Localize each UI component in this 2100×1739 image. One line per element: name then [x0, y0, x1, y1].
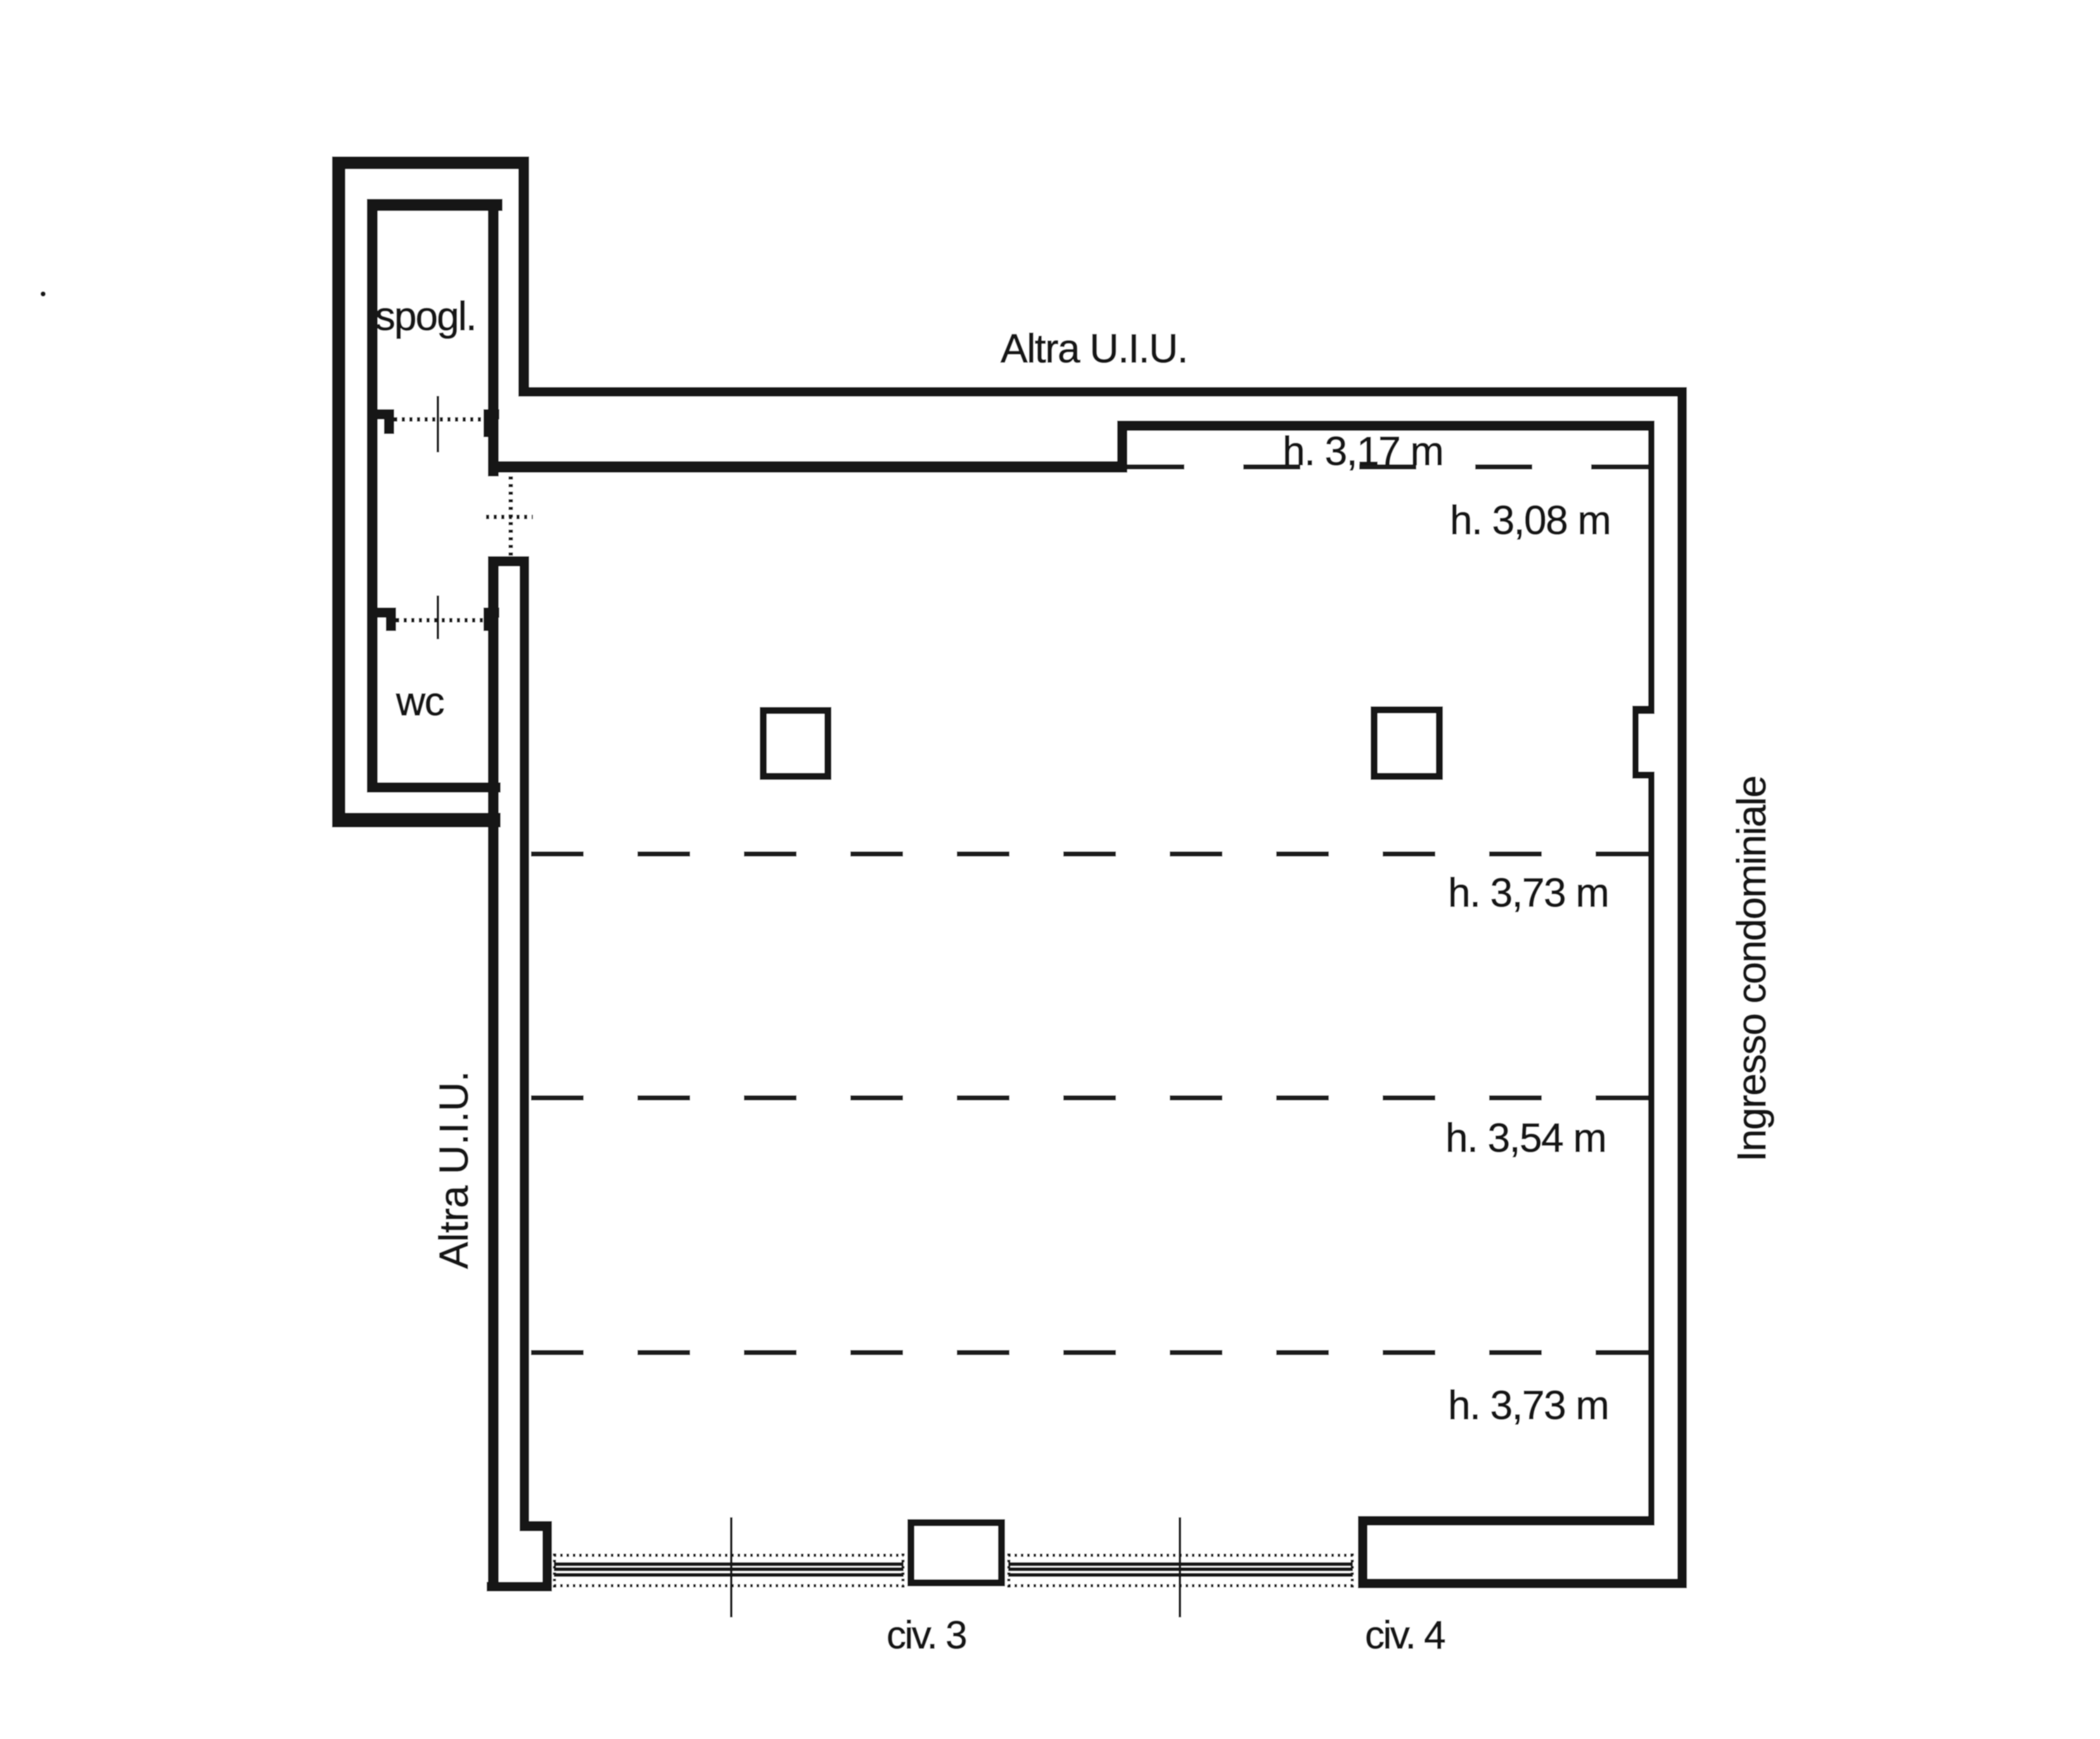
svg-text:civ. 3: civ. 3 — [887, 1614, 966, 1657]
svg-text:h. 3,73 m: h. 3,73 m — [1448, 1382, 1608, 1428]
svg-text:h. 3,17 m: h. 3,17 m — [1283, 428, 1443, 474]
svg-text:h. 3,08 m: h. 3,08 m — [1450, 497, 1610, 543]
svg-text:civ. 4: civ. 4 — [1365, 1614, 1445, 1657]
svg-text:h. 3,54 m: h. 3,54 m — [1445, 1115, 1606, 1161]
svg-text:h. 3,73 m: h. 3,73 m — [1448, 870, 1608, 915]
svg-text:Ingresso condominiale: Ingresso condominiale — [1729, 776, 1774, 1162]
svg-text:Altra U.I.U.: Altra U.I.U. — [1001, 326, 1188, 371]
svg-text:spogl.: spogl. — [375, 293, 476, 339]
svg-text:Altra U.I.U.: Altra U.I.U. — [431, 1071, 477, 1269]
svg-text:wc: wc — [395, 678, 444, 724]
